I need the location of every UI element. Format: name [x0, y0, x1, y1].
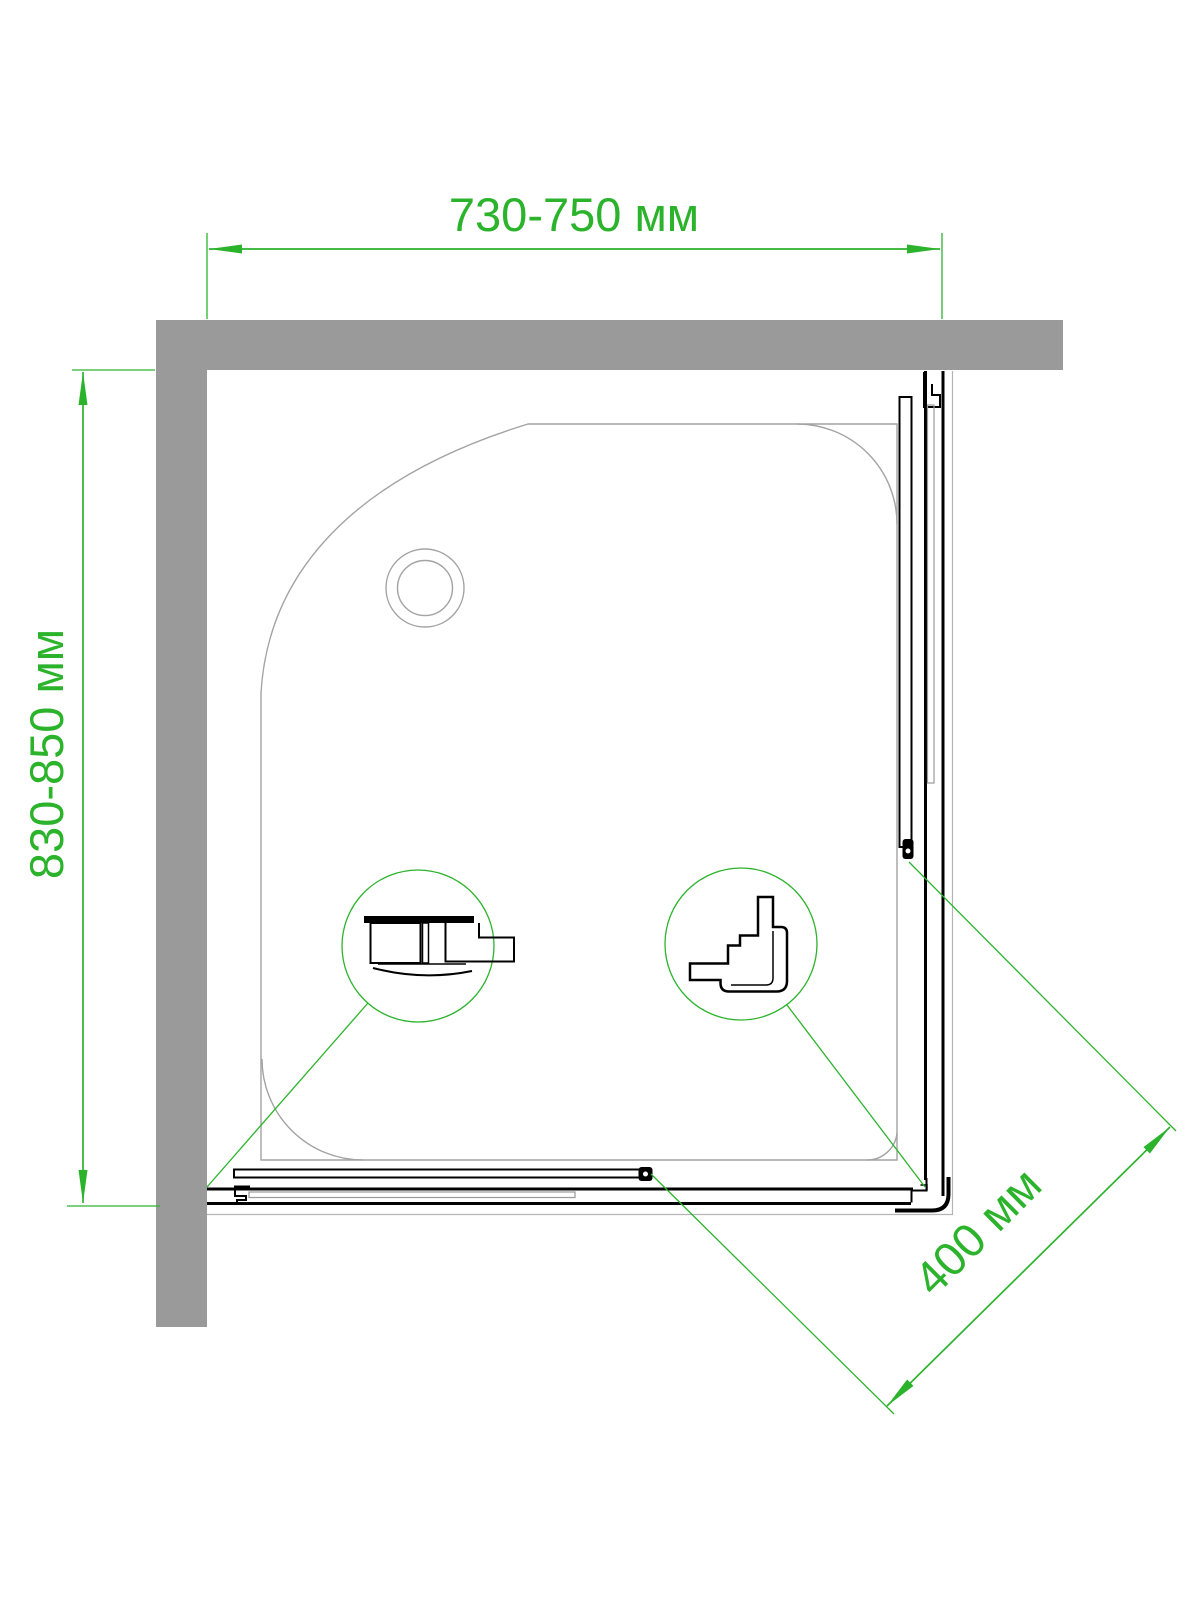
detail-callout-2 — [665, 868, 925, 1187]
side-door-roller-hole — [906, 849, 911, 854]
technical-drawing: 730-750 мм 830-850 мм 400 мм — [0, 0, 1200, 1600]
tray-rim — [261, 424, 897, 1160]
dim-width-label: 730-750 мм — [449, 188, 699, 241]
profile-1-divider — [423, 923, 429, 963]
profile-2-inner-line — [731, 931, 773, 985]
dim-width-arrow-right — [907, 245, 940, 254]
screenshot-canvas: 730-750 мм 830-850 мм 400 мм — [0, 0, 1200, 1600]
profile-1-hook — [446, 923, 515, 962]
tray-fillet-top-right — [797, 424, 897, 524]
tray-fillet-bottom-right — [867, 1133, 897, 1160]
bottom-door-roller-hole — [643, 1172, 648, 1177]
profile-1-box — [371, 923, 421, 963]
detail-callout-1 — [207, 870, 514, 1187]
glass-outer-boundary — [207, 371, 953, 1215]
profile-detail-2 — [690, 897, 787, 992]
dim-entry-ext-lower — [651, 1174, 894, 1414]
dim-depth-arrow-bottom — [79, 1170, 88, 1203]
dimension-width: 730-750 мм — [207, 188, 942, 319]
dim-width-arrow-left — [209, 245, 242, 254]
wall-top — [156, 320, 1063, 370]
bottom-sliding-door-panel — [234, 1170, 641, 1178]
dim-entry-arrow-lower — [887, 1380, 914, 1407]
profile-1-spring-arc — [373, 968, 472, 975]
bottom-door-assembly — [207, 1167, 913, 1204]
side-fixed-glass — [928, 405, 935, 783]
wall-left — [156, 320, 207, 1327]
drain-inner — [398, 561, 453, 616]
dim-depth-arrow-top — [79, 372, 88, 405]
side-door-assembly — [900, 371, 944, 1196]
detail-circle-1 — [342, 870, 494, 1022]
dim-depth-label: 830-850 мм — [20, 629, 73, 879]
bottom-fixed-glass — [249, 1192, 575, 1198]
dim-entry-ext-upper — [909, 862, 1176, 1131]
shower-tray — [261, 424, 897, 1160]
corner-post-inner — [912, 1178, 927, 1203]
side-sliding-door-panel — [900, 397, 912, 847]
profile-1-top-bar — [364, 916, 474, 923]
dim-entry-arrow-upper — [1144, 1127, 1171, 1154]
tray-fillet-bottom-left — [262, 1059, 363, 1160]
dimension-depth: 830-850 мм — [20, 370, 160, 1206]
